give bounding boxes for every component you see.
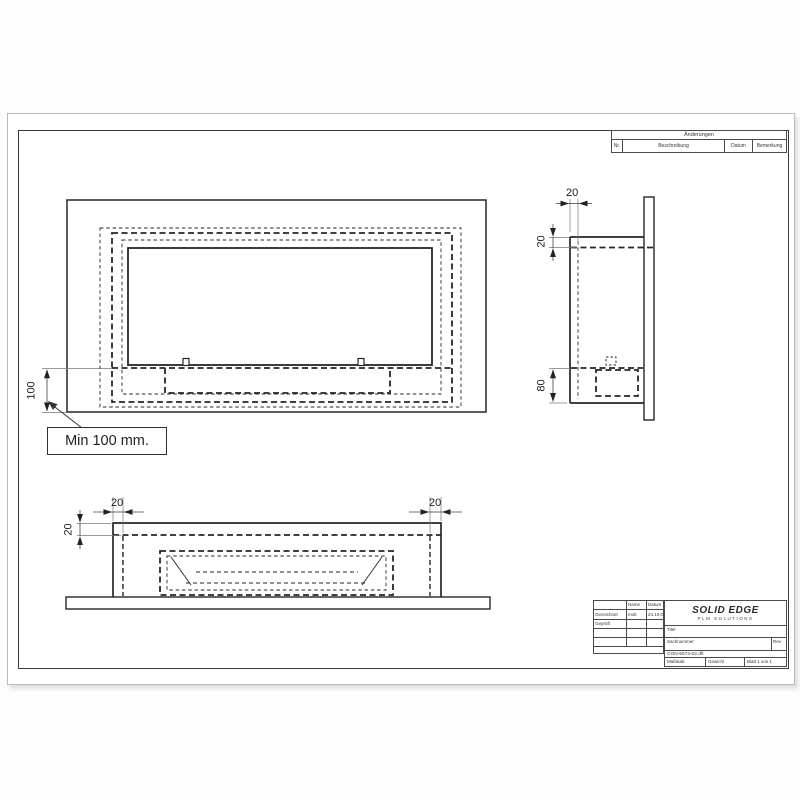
side-dim-depth-label: 20 [566,188,578,199]
front-view-drawing [67,200,486,412]
top-dim-left-20-label: 20 [111,498,123,509]
min-distance-callout-text: Min 100 mm. [65,433,149,449]
scanned-drawing-page: Änderungen Nr. Beschreibung Datum Bemerk… [0,0,800,800]
front-dim-100-label: 100 [27,381,38,399]
cad-linework [0,0,800,800]
side-dim-arrows [553,204,592,402]
top-view-drawing [66,523,490,609]
top-dim-arrows [80,510,462,549]
top-dim-edge-20-label: 20 [64,523,75,535]
top-dim-right-20-label: 20 [429,498,441,509]
callout-leader-line [48,401,82,428]
side-view-drawing [570,197,654,420]
side-dim-20-label: 20 [537,235,548,247]
side-dim-80-label: 80 [537,379,548,391]
top-dim-lines [77,497,441,536]
min-distance-callout: Min 100 mm. [47,427,167,455]
